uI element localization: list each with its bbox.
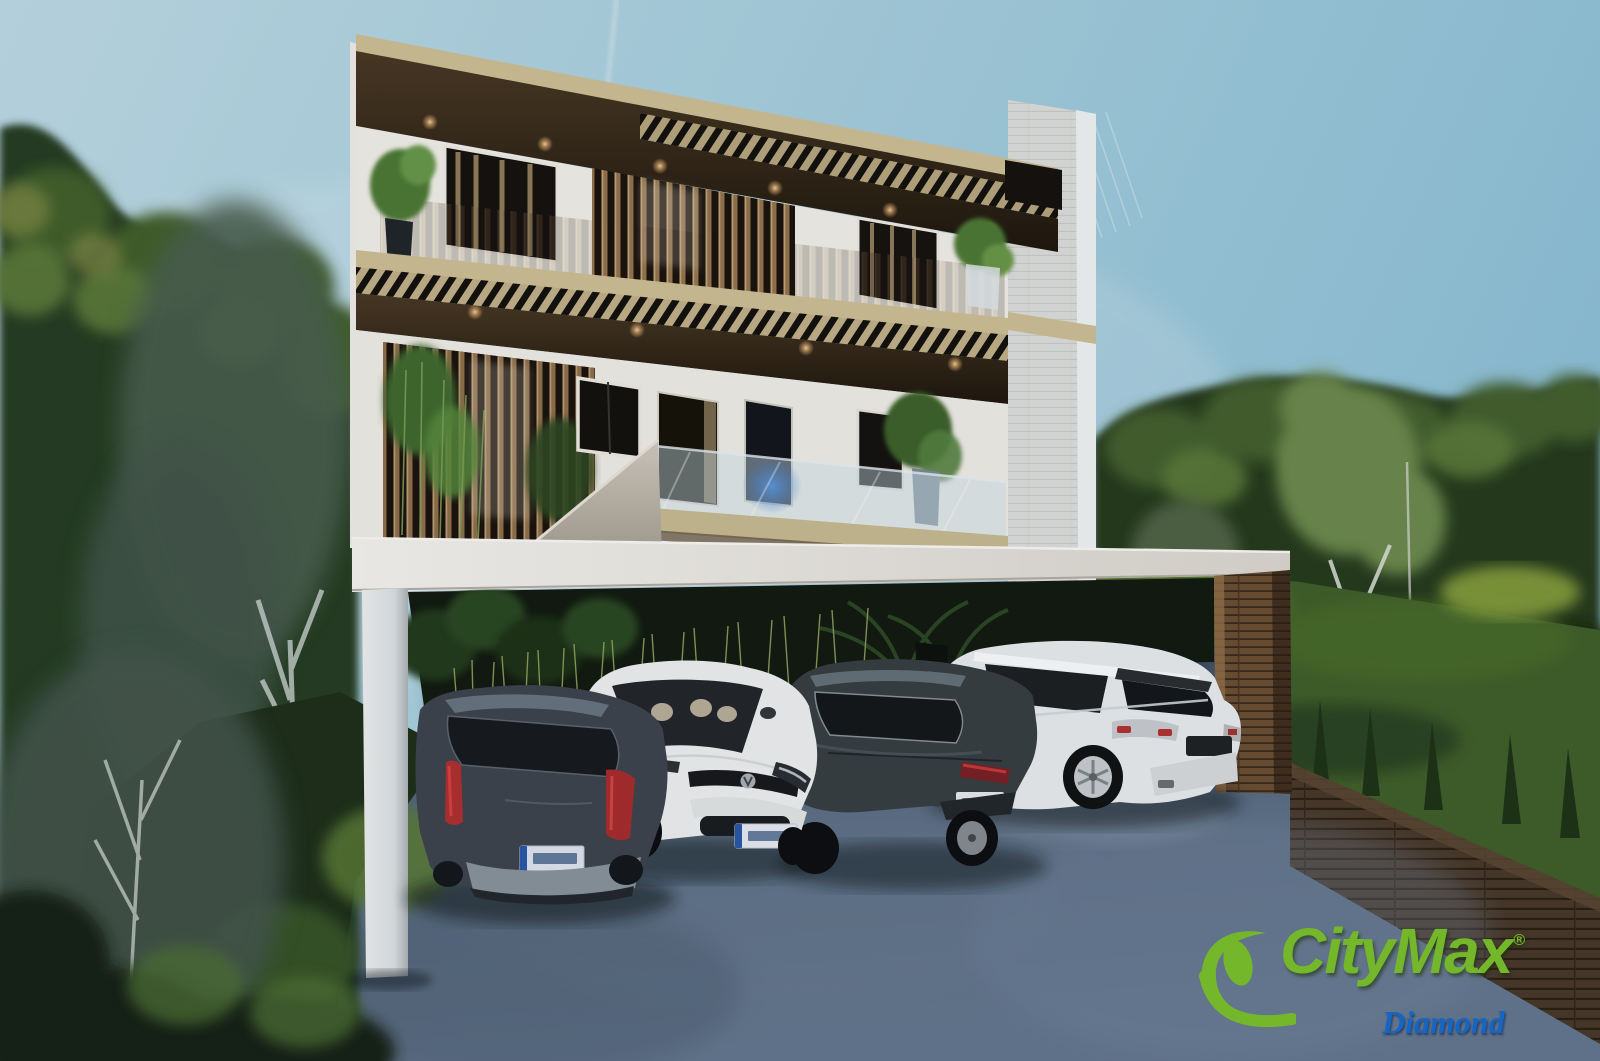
brand-text: CityMax® xyxy=(1280,914,1525,988)
scene-art xyxy=(0,0,1600,1061)
vignette xyxy=(0,0,1600,1061)
rendered-photo: CityMax® Diamond xyxy=(0,0,1600,1061)
sub-brand-text: Diamond xyxy=(1382,1004,1505,1041)
registered-mark: ® xyxy=(1513,932,1525,949)
citymax-watermark: CityMax® Diamond xyxy=(1186,912,1596,1052)
